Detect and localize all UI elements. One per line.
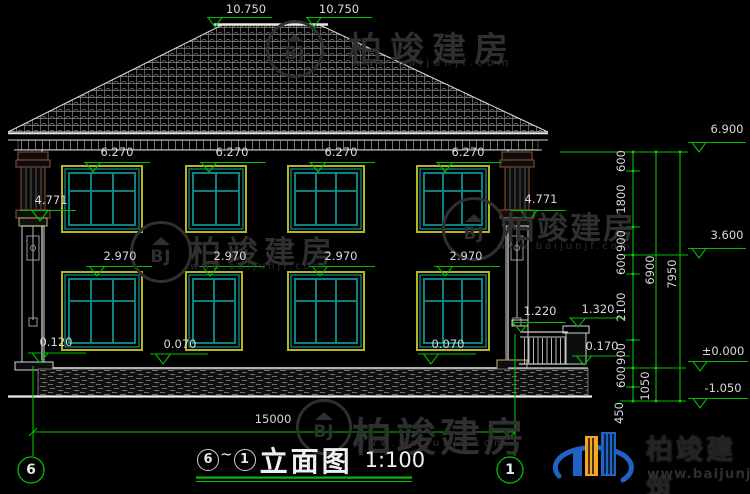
elevation-label-floor-2: 0.070	[420, 338, 476, 351]
plinth-foundation	[8, 368, 592, 397]
title-scale: 1:100	[365, 448, 426, 472]
elevation-label-right-minus: -1.050	[694, 382, 750, 395]
watermark-monogram: BJ	[284, 44, 305, 64]
watermark-roof-glyph	[315, 412, 333, 420]
elevation-label-lower-window-4: 2.970	[436, 250, 496, 263]
dim-overall: 7950	[666, 252, 680, 296]
title-grid-end: 1	[234, 449, 256, 471]
elevation-label-lower-window-2: 2.970	[200, 250, 260, 263]
watermark-url: www.baijunjf.com	[497, 241, 633, 252]
watermark-logo-circle: BJ	[266, 20, 324, 78]
elevation-label-rail: 1.220	[512, 305, 568, 318]
elevation-label-ridge-left: 10.750	[216, 3, 276, 16]
dim-below-total: 1050	[639, 364, 653, 408]
dim-floor-total: 6900	[644, 248, 658, 292]
title-tilde: ~	[220, 445, 233, 463]
drawing-title: 6 ~ 1 立面图 1:100	[197, 442, 425, 478]
elevation-label-capital-left: 4.771	[28, 194, 74, 207]
elevation-label-floor-1: 0.070	[152, 338, 208, 351]
grid-bubble-6: 6	[21, 462, 41, 478]
title-text: 立面图	[260, 440, 353, 480]
elevation-label-base: 0.120	[28, 336, 84, 349]
elevation-label-right-top: 6.900	[700, 123, 750, 136]
elevation-label-upper-window-4: 6.270	[438, 146, 498, 159]
window-lower-3	[288, 272, 364, 350]
windows-upper-row	[62, 166, 489, 232]
dim-total-width: 15000	[243, 413, 303, 426]
elevation-label-upper-window-1: 6.270	[87, 146, 147, 159]
company-logo-brand: 柏竣建筑	[646, 428, 750, 494]
cad-elevation-canvas: BJ 柏竣建房 www.baijunjf.com BJ 柏竣建房 www.bai…	[0, 0, 750, 494]
watermark-url: www.baijunjf.com	[352, 56, 512, 69]
grid-bubble-1: 1	[500, 462, 520, 478]
company-logo-icon	[555, 432, 631, 480]
watermark-monogram: BJ	[463, 224, 484, 244]
elevation-label-right-mid: 3.600	[700, 229, 750, 242]
elevation-label-lower-window-3: 2.970	[311, 250, 371, 263]
window-upper-2	[186, 166, 246, 232]
window-upper-3	[288, 166, 364, 232]
company-logo-url: www.baijunjz.com	[647, 466, 750, 482]
elevation-label-right-zero: ±0.000	[694, 345, 750, 358]
title-grid-start: 6	[197, 449, 219, 471]
elevation-label-upper-window-3: 6.270	[311, 146, 371, 159]
elevation-label-ridge-right: 10.750	[309, 3, 369, 16]
watermark-monogram: BJ	[313, 422, 334, 442]
elevation-label-lower-window-1: 2.970	[90, 250, 150, 263]
elevation-label-upper-window-2: 6.270	[202, 146, 262, 159]
elevation-label-capital-right: 4.771	[518, 193, 564, 206]
dim-chain-1800: 1800	[615, 177, 629, 221]
watermark-roof-glyph	[465, 214, 483, 222]
dim-chain-2100: 2100	[615, 285, 629, 329]
watermark-roof-glyph	[152, 237, 170, 245]
dim-chain-450: 450	[613, 391, 627, 435]
dim-chain-600b: 600	[615, 242, 629, 286]
watermark-roof-glyph	[286, 34, 304, 42]
window-upper-1	[62, 166, 142, 232]
watermark-monogram: BJ	[150, 247, 171, 267]
